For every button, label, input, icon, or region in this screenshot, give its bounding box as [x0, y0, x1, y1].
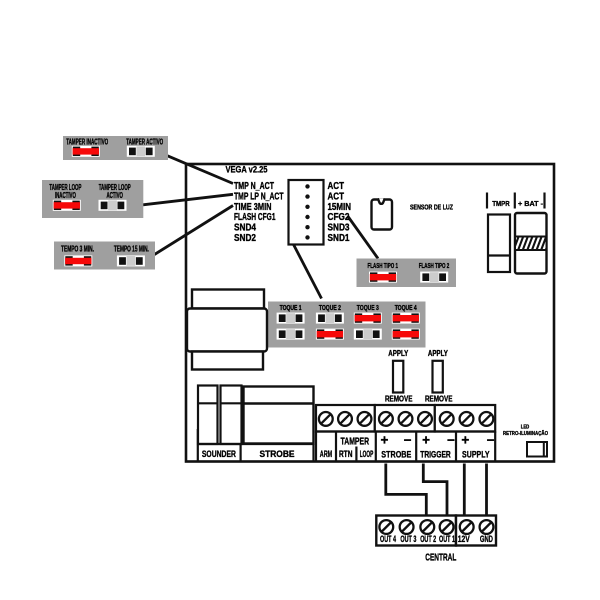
svg-text:TMP N_ACT: TMP N_ACT — [234, 181, 274, 192]
svg-text:ACT: ACT — [328, 191, 345, 202]
svg-text:LOOP: LOOP — [360, 449, 374, 459]
svg-text:15MIN: 15MIN — [328, 202, 352, 213]
svg-text:−: − — [487, 432, 495, 447]
svg-text:ACT: ACT — [328, 181, 345, 192]
svg-text:OUT 1: OUT 1 — [439, 534, 455, 544]
svg-text:OUT 2: OUT 2 — [420, 534, 436, 544]
svg-text:TOQUE 1: TOQUE 1 — [280, 305, 302, 312]
svg-text:−: − — [404, 432, 412, 447]
svg-text:ARM: ARM — [320, 449, 333, 459]
svg-text:RTN: RTN — [339, 449, 353, 459]
svg-text:+ BAT -: + BAT - — [518, 199, 543, 208]
svg-text:APPLY: APPLY — [428, 349, 448, 358]
svg-text:SUPPLY: SUPPLY — [462, 449, 490, 460]
svg-text:SND3: SND3 — [328, 223, 351, 234]
svg-text:TMPR: TMPR — [492, 199, 510, 208]
svg-text:SOUNDER: SOUNDER — [202, 449, 236, 460]
svg-text:TEMPO 15 MIN.: TEMPO 15 MIN. — [114, 245, 149, 254]
svg-text:CENTRAL: CENTRAL — [425, 553, 456, 564]
svg-text:12V: 12V — [458, 534, 471, 544]
svg-text:APPLY: APPLY — [388, 349, 408, 358]
svg-text:LED: LED — [521, 425, 530, 431]
svg-text:−: − — [447, 432, 455, 447]
svg-text:OUT 3: OUT 3 — [400, 534, 416, 544]
svg-text:+: + — [461, 432, 469, 447]
svg-text:FLASH CFG1: FLASH CFG1 — [234, 212, 276, 223]
svg-text:VEGA v2.25: VEGA v2.25 — [226, 164, 268, 174]
svg-text:+: + — [380, 432, 388, 447]
svg-text:SND1: SND1 — [328, 233, 351, 244]
svg-text:INACTIVO: INACTIVO — [55, 191, 76, 200]
svg-text:CFG2: CFG2 — [328, 212, 350, 223]
svg-text:FLASH TIPO 2: FLASH TIPO 2 — [419, 263, 450, 270]
svg-text:REMOVE: REMOVE — [385, 395, 413, 404]
svg-text:TAMPER INACTIVO: TAMPER INACTIVO — [66, 137, 108, 146]
svg-text:STROBE: STROBE — [381, 449, 411, 460]
svg-text:TOQUE 2: TOQUE 2 — [319, 305, 341, 312]
svg-text:REMOVE: REMOVE — [425, 395, 453, 404]
svg-text:TIME 3MIN: TIME 3MIN — [234, 202, 272, 213]
svg-text:SND4: SND4 — [234, 223, 257, 234]
svg-text:STROBE: STROBE — [260, 449, 296, 460]
svg-text:+: + — [422, 432, 430, 447]
svg-text:RETRO-ILUMINAÇÃO: RETRO-ILUMINAÇÃO — [503, 430, 549, 437]
svg-text:TOQUE 4: TOQUE 4 — [395, 305, 417, 312]
svg-text:TAMPER ACTIVO: TAMPER ACTIVO — [126, 137, 163, 146]
svg-text:FLASH TIPO 1: FLASH TIPO 1 — [368, 263, 399, 270]
svg-text:TRIGGER: TRIGGER — [420, 449, 451, 460]
svg-text:TAMPER: TAMPER — [341, 437, 370, 448]
svg-text:TMP LP N_ACT: TMP LP N_ACT — [234, 191, 284, 202]
svg-text:TOQUE 3: TOQUE 3 — [357, 305, 379, 312]
svg-text:SENSOR DE LUZ: SENSOR DE LUZ — [410, 203, 453, 212]
svg-text:GND: GND — [480, 534, 493, 544]
svg-text:SND2: SND2 — [234, 233, 256, 244]
svg-text:OUT 4: OUT 4 — [380, 534, 397, 544]
svg-text:TEMPO 3 MIN.: TEMPO 3 MIN. — [61, 245, 94, 254]
svg-text:ACTIVO: ACTIVO — [106, 191, 123, 200]
